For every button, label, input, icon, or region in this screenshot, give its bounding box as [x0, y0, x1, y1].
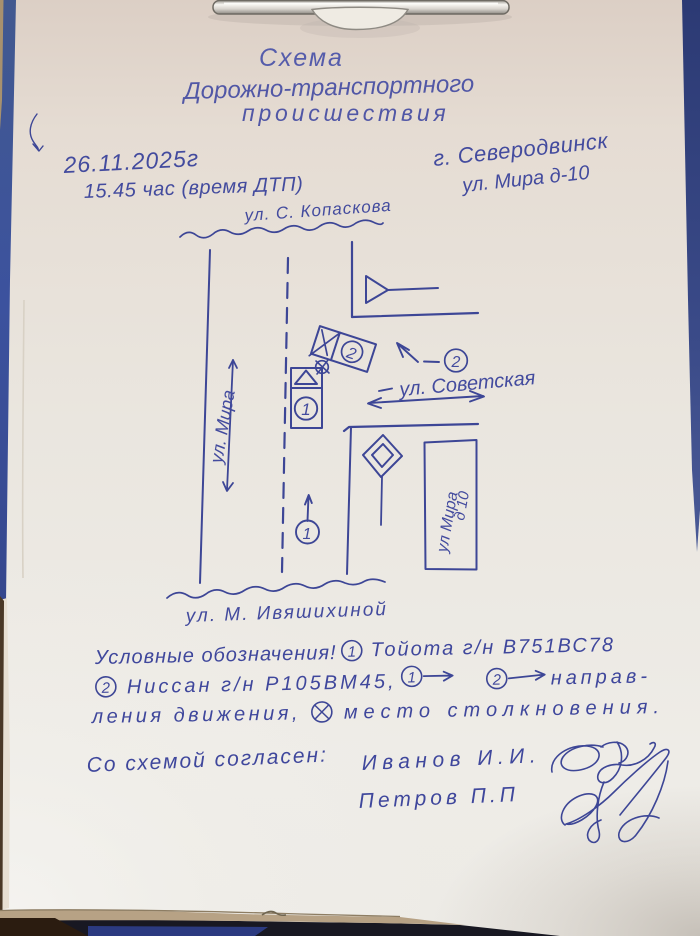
svg-text:1: 1: [303, 526, 312, 543]
svg-text:Схема: Схема: [259, 44, 344, 72]
svg-text:1: 1: [347, 644, 356, 661]
svg-text:ления движения,: ления движения,: [91, 702, 301, 728]
svg-text:1: 1: [407, 669, 416, 686]
svg-text:происшествия: происшествия: [242, 100, 450, 126]
svg-text:1: 1: [301, 400, 310, 419]
svg-text:2: 2: [491, 672, 501, 689]
svg-text:2: 2: [101, 680, 111, 697]
svg-text:направ-: направ-: [551, 665, 652, 689]
svg-text:2: 2: [451, 354, 461, 371]
